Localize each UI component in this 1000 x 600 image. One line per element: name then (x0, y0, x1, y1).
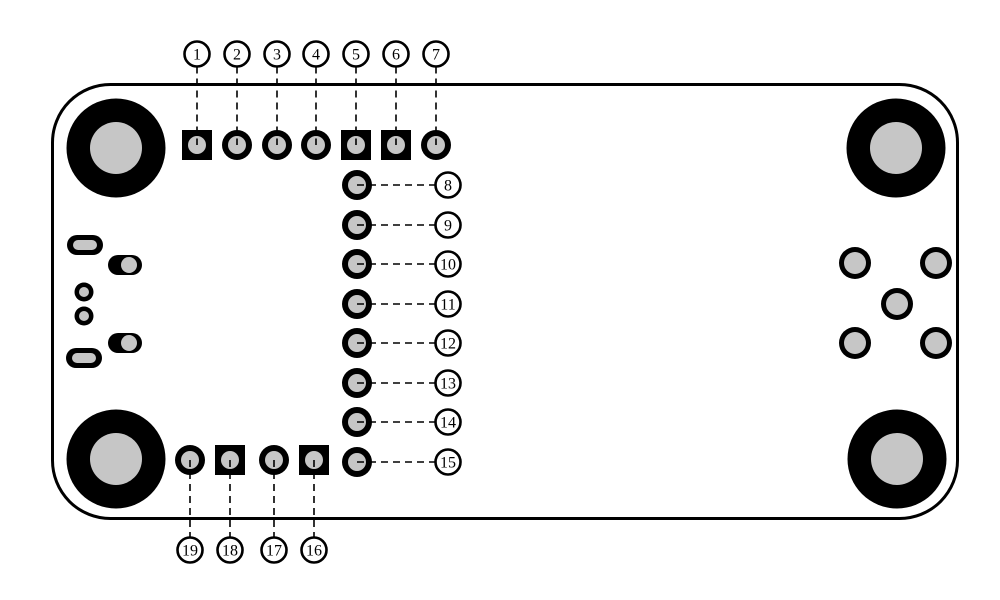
pin-label-text-12: 12 (440, 335, 456, 352)
usb-oval-slot-2 (72, 353, 96, 363)
pin-label-text-7: 7 (432, 46, 440, 63)
pin-label-text-5: 5 (352, 46, 360, 63)
usb-small-hole-2 (79, 311, 89, 321)
pcb-pinout-svg: 12345678910111213141516171819 (0, 0, 1000, 600)
usb-oval-slot-1 (73, 240, 97, 250)
cluster-hole-2 (925, 252, 947, 274)
mounting-hole-3 (90, 433, 142, 485)
pin-label-text-17: 17 (266, 542, 282, 559)
pin-label-text-4: 4 (312, 46, 320, 63)
cluster-hole-5 (925, 332, 947, 354)
pin-label-text-1: 1 (193, 46, 201, 63)
pin-label-text-18: 18 (222, 542, 238, 559)
usb-capsule-hole-2 (121, 335, 137, 351)
pin-label-text-13: 13 (440, 375, 456, 392)
mounting-hole-1 (90, 122, 142, 174)
pin-label-text-2: 2 (233, 46, 241, 63)
pin-label-text-10: 10 (440, 256, 456, 273)
usb-small-hole-1 (79, 287, 89, 297)
cluster-hole-1 (844, 252, 866, 274)
pin-label-text-15: 15 (440, 454, 456, 471)
diagram-background (0, 0, 1000, 600)
mounting-hole-2 (870, 122, 922, 174)
pin-label-text-14: 14 (440, 414, 456, 431)
usb-capsule-hole-1 (121, 257, 137, 273)
mounting-hole-4 (871, 433, 923, 485)
pin-label-text-9: 9 (444, 217, 452, 234)
pin-label-text-6: 6 (392, 46, 400, 63)
cluster-hole-3 (886, 293, 908, 315)
pcb-pinout-diagram: 12345678910111213141516171819 (0, 0, 1000, 600)
cluster-hole-4 (844, 332, 866, 354)
pin-label-text-8: 8 (444, 177, 452, 194)
pin-label-text-3: 3 (273, 46, 281, 63)
pin-label-text-11: 11 (440, 296, 455, 313)
pin-label-text-16: 16 (306, 542, 322, 559)
pin-label-text-19: 19 (182, 542, 198, 559)
